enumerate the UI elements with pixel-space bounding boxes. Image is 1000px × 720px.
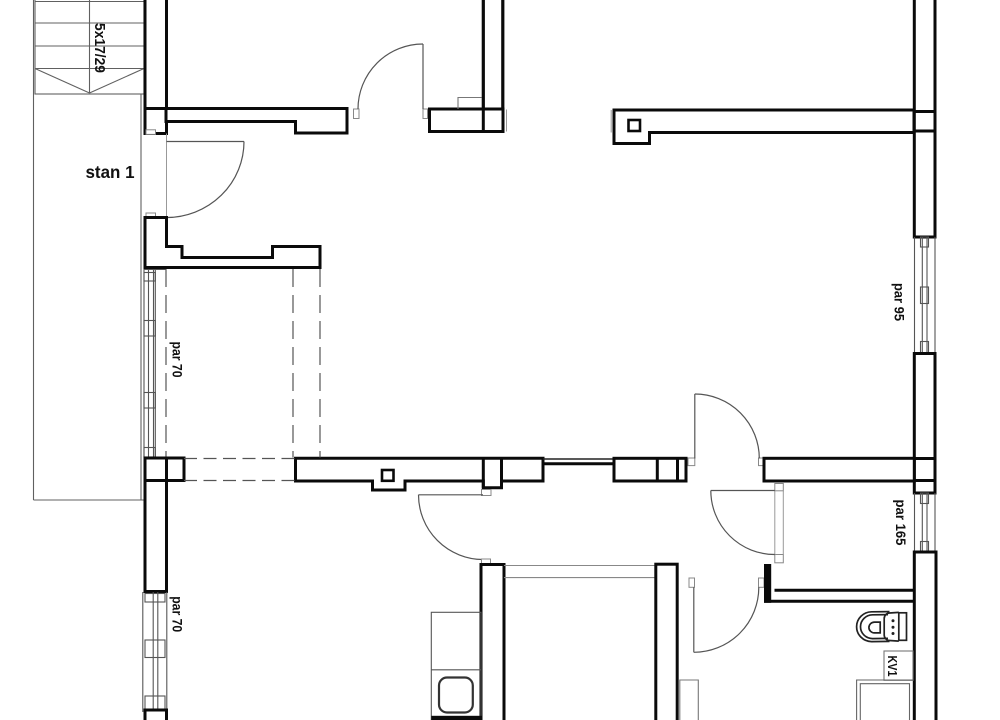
svg-text:5x17/29: 5x17/29 xyxy=(91,23,108,73)
svg-text:stan 1: stan 1 xyxy=(86,162,135,182)
svg-text:par 70: par 70 xyxy=(170,596,186,632)
svg-text:par 70: par 70 xyxy=(170,342,186,378)
svg-text:par 95: par 95 xyxy=(892,283,908,321)
svg-text:KV1: KV1 xyxy=(885,656,900,677)
svg-text:par 165: par 165 xyxy=(893,500,909,546)
